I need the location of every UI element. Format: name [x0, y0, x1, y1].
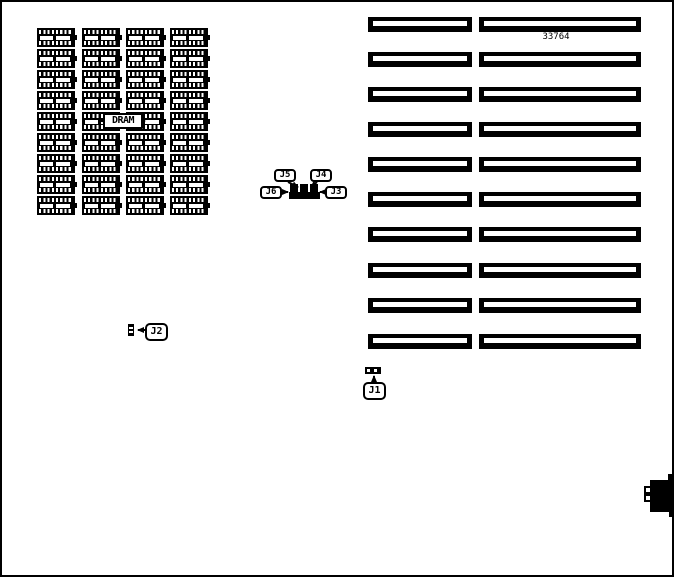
chip-pins-top	[39, 156, 73, 160]
chip-body-bar	[85, 141, 98, 145]
chip-pins-bottom	[172, 41, 206, 45]
chip-body-bar	[101, 141, 115, 145]
dram-chip	[126, 175, 164, 194]
chip-pins-bottom	[39, 104, 73, 108]
edge-connector-tab	[668, 474, 674, 480]
chip-pins-bottom	[128, 83, 162, 87]
dram-chip	[37, 49, 75, 68]
chip-notch	[164, 56, 166, 61]
chip-pins-top	[172, 30, 206, 34]
chip-body-bar	[101, 36, 115, 40]
expansion-slot	[368, 298, 472, 313]
chip-pins-bottom	[172, 125, 206, 129]
chip-body-bar	[40, 99, 53, 103]
dram-chip	[37, 175, 75, 194]
chip-body-bar	[145, 36, 159, 40]
chip-pins-top	[84, 72, 118, 76]
expansion-slot	[479, 52, 641, 67]
chip-body-bar	[56, 162, 70, 166]
chip-body-bar	[189, 99, 203, 103]
chip-body-bar	[56, 36, 70, 40]
chip-body-bar	[56, 78, 70, 82]
chip-notch	[164, 140, 166, 145]
dram-chip	[37, 112, 75, 131]
expansion-slot	[479, 122, 641, 137]
chip-body-bar	[40, 57, 53, 61]
chip-pins-bottom	[39, 83, 73, 87]
expansion-slot	[479, 192, 641, 207]
slot-opening	[484, 126, 636, 131]
dram-chip	[37, 28, 75, 47]
chip-pins-bottom	[128, 167, 162, 171]
dram-chip	[170, 133, 208, 152]
chip-pins-top	[128, 177, 162, 181]
dram-chip	[170, 49, 208, 68]
chip-body-bar	[40, 120, 53, 124]
chip-body-bar	[173, 162, 186, 166]
chip-notch	[208, 182, 210, 187]
chip-body-bar	[56, 99, 70, 103]
chip-pins-top	[172, 51, 206, 55]
chip-pins-bottom	[84, 167, 118, 171]
chip-pins-bottom	[128, 146, 162, 150]
chip-pins-top	[84, 93, 118, 97]
chip-body-bar	[101, 78, 115, 82]
chip-notch	[120, 35, 122, 40]
chip-pins-top	[84, 30, 118, 34]
chip-notch	[120, 140, 122, 145]
chip-pins-top	[172, 93, 206, 97]
chip-pins-bottom	[84, 146, 118, 150]
chip-pins-bottom	[128, 41, 162, 45]
chip-pins-top	[128, 72, 162, 76]
chip-pins-top	[84, 51, 118, 55]
chip-body-bar	[129, 99, 142, 103]
expansion-slot	[368, 192, 472, 207]
dram-chip	[170, 196, 208, 215]
dram-chip	[170, 175, 208, 194]
chip-notch	[75, 119, 77, 124]
chip-body-bar	[173, 36, 186, 40]
chip-pins-top	[172, 177, 206, 181]
chip-notch	[164, 182, 166, 187]
dram-chip	[126, 28, 164, 47]
dram-chip	[37, 154, 75, 173]
dram-chip	[82, 49, 120, 68]
dram-chip	[126, 154, 164, 173]
jumper-label-j4: J4	[310, 169, 332, 182]
edge-connector	[650, 480, 674, 512]
expansion-slot	[368, 334, 472, 349]
chip-body-bar	[173, 78, 186, 82]
chip-notch	[75, 35, 77, 40]
chip-body-bar	[145, 78, 159, 82]
chip-pins-top	[172, 135, 206, 139]
chip-pins-top	[39, 30, 73, 34]
chip-body-bar	[40, 36, 53, 40]
slot-opening	[373, 231, 467, 236]
chip-pins-top	[128, 198, 162, 202]
chip-pins-bottom	[172, 146, 206, 150]
edge-connector-tab	[669, 512, 674, 517]
chip-pins-bottom	[172, 188, 206, 192]
chip-body-bar	[85, 204, 98, 208]
chip-notch	[208, 119, 210, 124]
chip-pins-top	[84, 177, 118, 181]
chip-pins-bottom	[39, 41, 73, 45]
jumper-label-j5: J5	[274, 169, 296, 182]
chip-pins-bottom	[128, 209, 162, 213]
chip-body-bar	[101, 183, 115, 187]
chip-notch	[208, 161, 210, 166]
chip-notch	[120, 182, 122, 187]
slot-opening	[373, 302, 467, 307]
dram-label: DRAM	[103, 113, 143, 129]
dram-chip	[82, 28, 120, 47]
expansion-slot	[479, 87, 641, 102]
chip-pins-bottom	[84, 41, 118, 45]
chip-pins-top	[128, 135, 162, 139]
slot-opening	[484, 231, 636, 236]
slot-opening	[484, 21, 636, 26]
chip-body-bar	[189, 78, 203, 82]
dram-chip	[170, 154, 208, 173]
expansion-slot	[479, 263, 641, 278]
chip-body-bar	[40, 141, 53, 145]
chip-body-bar	[145, 57, 159, 61]
chip-notch	[120, 98, 122, 103]
dram-chip	[82, 91, 120, 110]
expansion-slot	[368, 263, 472, 278]
chip-notch	[75, 203, 77, 208]
chip-notch	[208, 56, 210, 61]
slot-opening	[373, 161, 467, 166]
jumper-pin-stripe	[129, 331, 133, 333]
chip-pins-top	[128, 93, 162, 97]
expansion-slot	[368, 157, 472, 172]
chip-pins-bottom	[172, 167, 206, 171]
jumper-label-j2: J2	[145, 323, 168, 341]
chip-pins-top	[128, 51, 162, 55]
chip-body-bar	[40, 78, 53, 82]
chip-body-bar	[85, 120, 98, 124]
dram-chip	[37, 91, 75, 110]
chip-pins-bottom	[39, 125, 73, 129]
chip-pins-top	[84, 156, 118, 160]
dram-chip	[82, 133, 120, 152]
chip-body-bar	[56, 183, 70, 187]
chip-notch	[120, 56, 122, 61]
chip-notch	[75, 140, 77, 145]
edge-connector-pin	[644, 494, 652, 502]
chip-pins-top	[39, 93, 73, 97]
slot-opening	[373, 126, 467, 131]
slot-opening	[484, 338, 636, 343]
expansion-slot	[479, 298, 641, 313]
jumper-j1-component	[365, 367, 381, 374]
edge-connector-pin	[644, 486, 652, 494]
expansion-slot	[479, 227, 641, 242]
chip-body-bar	[145, 204, 159, 208]
chip-pins-bottom	[172, 62, 206, 66]
chip-pins-bottom	[128, 104, 162, 108]
expansion-slot	[479, 17, 641, 32]
chip-body-bar	[101, 57, 115, 61]
slot-opening	[484, 56, 636, 61]
chip-body-bar	[189, 183, 203, 187]
chip-body-bar	[85, 57, 98, 61]
chip-notch	[208, 203, 210, 208]
chip-pins-top	[39, 72, 73, 76]
chip-pins-bottom	[39, 146, 73, 150]
chip-pins-bottom	[84, 83, 118, 87]
dram-chip	[170, 28, 208, 47]
dram-chip	[126, 133, 164, 152]
chip-pins-bottom	[84, 188, 118, 192]
chip-body-bar	[101, 99, 115, 103]
chip-body-bar	[129, 183, 142, 187]
jumper-label-j1: J1	[363, 382, 386, 400]
chip-pins-top	[172, 72, 206, 76]
chip-pins-top	[172, 156, 206, 160]
chip-body-bar	[129, 162, 142, 166]
dram-chip	[126, 91, 164, 110]
chip-pins-bottom	[39, 62, 73, 66]
chip-body-bar	[173, 141, 186, 145]
dram-chip	[37, 133, 75, 152]
chip-pins-bottom	[128, 188, 162, 192]
chip-body-bar	[85, 36, 98, 40]
dram-chip	[126, 49, 164, 68]
dram-chip	[37, 196, 75, 215]
chip-body-bar	[189, 204, 203, 208]
chip-body-bar	[173, 183, 186, 187]
chip-body-bar	[56, 120, 70, 124]
dram-chip	[170, 91, 208, 110]
slot-opening	[484, 91, 636, 96]
chip-body-bar	[173, 57, 186, 61]
chip-notch	[164, 161, 166, 166]
chip-pins-top	[128, 156, 162, 160]
chip-body-bar	[189, 162, 203, 166]
chip-pins-top	[172, 114, 206, 118]
chip-notch	[164, 203, 166, 208]
expansion-slot	[368, 122, 472, 137]
slot-opening	[373, 56, 467, 61]
chip-body-bar	[56, 141, 70, 145]
chip-body-bar	[85, 99, 98, 103]
slot-opening	[484, 302, 636, 307]
chip-body-bar	[145, 141, 159, 145]
jumper-label-j6: J6	[260, 186, 282, 199]
chip-pins-top	[39, 198, 73, 202]
chip-pins-top	[39, 51, 73, 55]
slot-opening	[373, 267, 467, 272]
jumper-pin-hole	[367, 369, 370, 372]
chip-body-bar	[189, 57, 203, 61]
chip-body-bar	[85, 162, 98, 166]
chip-notch	[164, 77, 166, 82]
chip-body-bar	[189, 36, 203, 40]
dram-chip	[126, 196, 164, 215]
dram-chip	[170, 112, 208, 131]
dram-chip	[82, 154, 120, 173]
slot-opening	[484, 196, 636, 201]
chip-body-bar	[40, 204, 53, 208]
jumper-block	[300, 184, 308, 199]
chip-body-bar	[173, 120, 186, 124]
chip-pins-top	[39, 177, 73, 181]
chip-body-bar	[145, 162, 159, 166]
chip-body-bar	[101, 162, 115, 166]
chip-body-bar	[173, 204, 186, 208]
chip-pins-top	[84, 135, 118, 139]
chip-notch	[75, 77, 77, 82]
expansion-slot	[479, 334, 641, 349]
expansion-slot	[368, 227, 472, 242]
chip-pins-top	[39, 114, 73, 118]
chip-pins-bottom	[128, 62, 162, 66]
dram-chip	[82, 196, 120, 215]
chip-notch	[75, 56, 77, 61]
chip-body-bar	[40, 183, 53, 187]
jumper-pin-hole	[374, 369, 377, 372]
chip-body-bar	[189, 141, 203, 145]
chip-pins-bottom	[172, 83, 206, 87]
chip-pins-top	[128, 30, 162, 34]
jumper-pin-stripe	[129, 327, 133, 329]
slot-opening	[373, 21, 467, 26]
chip-body-bar	[129, 204, 142, 208]
chip-notch	[120, 77, 122, 82]
chip-body-bar	[129, 78, 142, 82]
jumper-block	[290, 184, 298, 199]
chip-body-bar	[145, 99, 159, 103]
slot-opening	[373, 91, 467, 96]
chip-pins-top	[39, 135, 73, 139]
chip-pins-bottom	[39, 167, 73, 171]
jumper-label-j3: J3	[325, 186, 347, 199]
jumper-block	[310, 184, 318, 199]
chip-notch	[120, 161, 122, 166]
chip-notch	[208, 140, 210, 145]
circuit-board-diagram: DRAM J5 J4 J6 J3 J2 J1 33764	[0, 0, 674, 577]
chip-notch	[75, 98, 77, 103]
chip-notch	[208, 35, 210, 40]
chip-body-bar	[129, 141, 142, 145]
dram-chip	[170, 70, 208, 89]
chip-pins-bottom	[172, 104, 206, 108]
chip-pins-top	[172, 198, 206, 202]
dram-chip	[82, 70, 120, 89]
chip-body-bar	[129, 36, 142, 40]
expansion-slot	[479, 157, 641, 172]
chip-body-bar	[189, 120, 203, 124]
chip-notch	[164, 35, 166, 40]
chip-notch	[75, 182, 77, 187]
chip-body-bar	[129, 57, 142, 61]
chip-pins-bottom	[39, 209, 73, 213]
slot-opening	[373, 338, 467, 343]
chip-pins-bottom	[39, 188, 73, 192]
chip-body-bar	[56, 204, 70, 208]
chip-body-bar	[85, 78, 98, 82]
chip-notch	[208, 77, 210, 82]
chip-body-bar	[101, 204, 115, 208]
chip-notch	[164, 119, 166, 124]
chip-notch	[208, 98, 210, 103]
chip-pins-bottom	[84, 62, 118, 66]
chip-pins-bottom	[84, 104, 118, 108]
chip-pins-bottom	[84, 209, 118, 213]
chip-body-bar	[145, 183, 159, 187]
chip-body-bar	[56, 57, 70, 61]
expansion-slot	[368, 52, 472, 67]
chip-notch	[120, 203, 122, 208]
expansion-slot	[368, 87, 472, 102]
dram-chip	[82, 175, 120, 194]
slot-opening	[484, 161, 636, 166]
chip-notch	[164, 98, 166, 103]
chip-notch	[75, 161, 77, 166]
chip-body-bar	[145, 120, 159, 124]
expansion-slot	[368, 17, 472, 32]
chip-body-bar	[40, 162, 53, 166]
part-number: 33764	[538, 33, 574, 42]
chip-body-bar	[85, 183, 98, 187]
chip-pins-top	[84, 198, 118, 202]
dram-chip	[126, 70, 164, 89]
slot-opening	[373, 196, 467, 201]
jumper-j2-component	[128, 324, 134, 336]
dram-chip	[37, 70, 75, 89]
chip-body-bar	[173, 99, 186, 103]
chip-pins-bottom	[172, 209, 206, 213]
slot-opening	[484, 267, 636, 272]
